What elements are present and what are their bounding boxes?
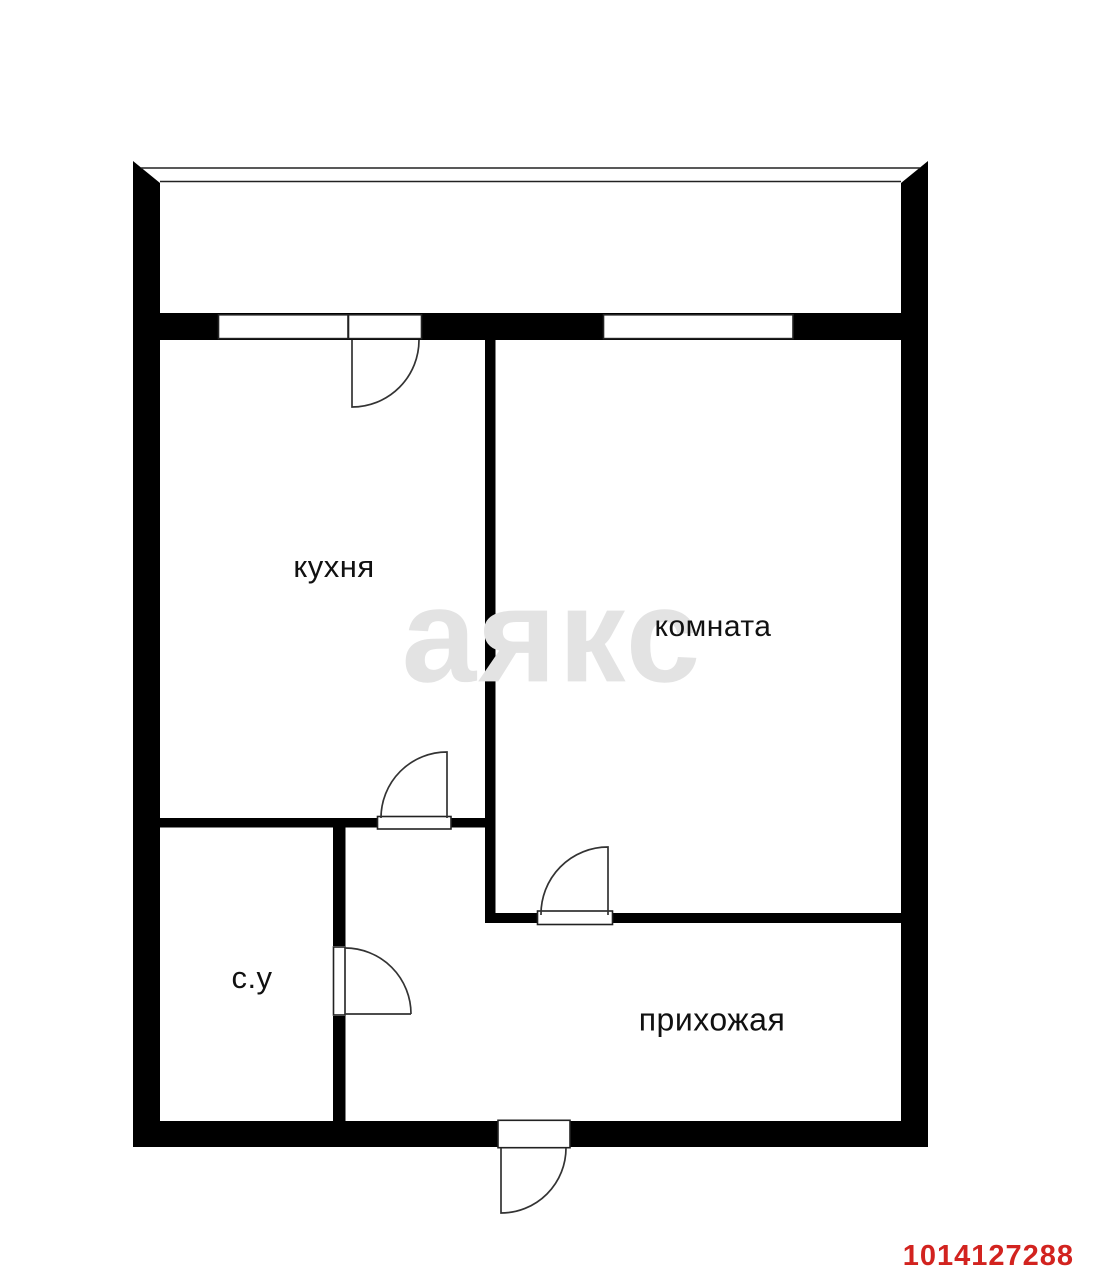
room-label-hallway: прихожая: [639, 1002, 786, 1039]
outer-wall-bottom-left: [133, 1121, 498, 1147]
kitchen-window: [219, 315, 349, 339]
room-door-swing: [541, 847, 608, 915]
bathroom-wall-bottom: [333, 1016, 346, 1121]
room-window: [604, 315, 794, 339]
door-swings: [345, 340, 608, 1213]
outer-wall-right: [901, 161, 928, 1147]
listing-id: 1014127288: [903, 1240, 1074, 1273]
room-bottom-wall-left: [485, 913, 538, 923]
kitchen-bottom-wall-right: [451, 818, 485, 828]
interior-walls: [160, 340, 901, 1121]
kitchen-door-swing: [381, 752, 447, 818]
balcony-door-opening: [349, 315, 422, 339]
balcony-door-swing: [352, 340, 419, 407]
room-door-sill: [538, 911, 613, 925]
entrance-door-swing: [501, 1148, 566, 1213]
bathroom-door-leaf: [334, 947, 346, 1015]
kitchen-door-sill: [378, 817, 452, 830]
room-label-bathroom: с.у: [231, 960, 272, 996]
floorplan-canvas: аякс кухня комната с.у прихожая 10141272…: [0, 0, 1096, 1280]
outer-wall-bottom-right: [570, 1121, 928, 1147]
bathroom-door-swing: [345, 948, 411, 1014]
door-openings: [334, 817, 613, 1148]
room-label-room: комната: [655, 610, 772, 644]
room-label-kitchen: кухня: [293, 549, 374, 585]
bathroom-wall-top: [333, 818, 346, 946]
outer-wall-left: [133, 161, 160, 1147]
entrance-opening: [498, 1120, 570, 1147]
room-bottom-wall-right: [612, 913, 901, 923]
balcony-glazing: [141, 168, 920, 182]
